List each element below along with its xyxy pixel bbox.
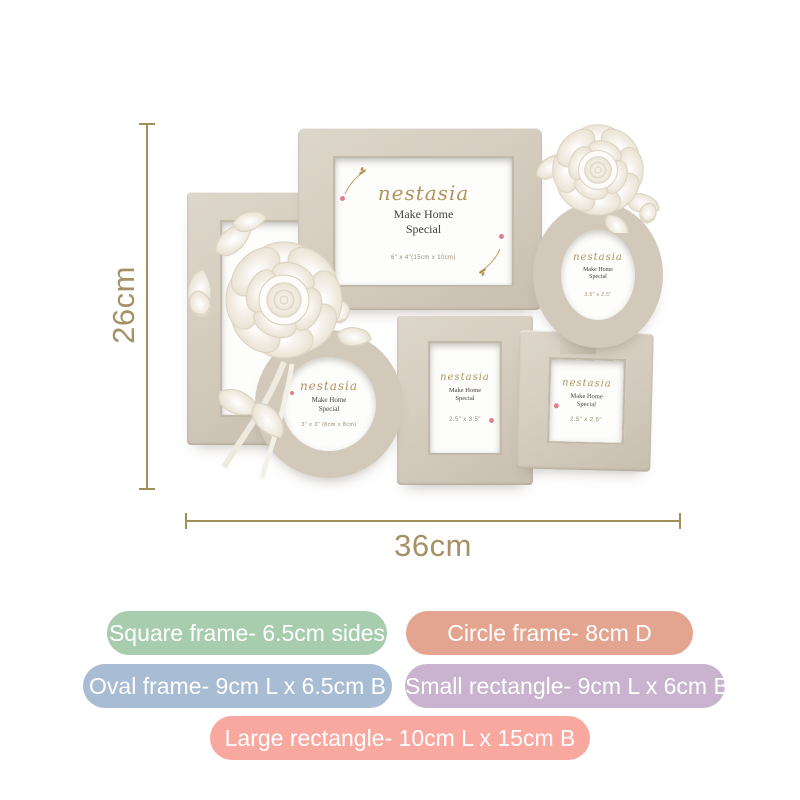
brand-logo-text: nestasia [573, 253, 623, 263]
tagline-line2: Special [394, 222, 454, 237]
square-frame-opening: nestasia Make Home Special 2.5" x 2.5" [547, 357, 626, 445]
product-dimension-infographic: 26cm 36cm nestasia Ma [0, 0, 800, 800]
pink-dot [554, 403, 559, 408]
badge-circle-frame: Circle frame- 8cm D [406, 611, 693, 655]
tagline-line1: Make Home [583, 267, 613, 275]
pink-dot [499, 234, 504, 239]
rose-ornament-left [172, 212, 397, 487]
wheat-sprig-icon [476, 247, 502, 277]
brand-logo-text: nestasia [562, 378, 612, 389]
brand-tagline: Make Home Special [394, 207, 454, 237]
rose-ornament-right [520, 118, 680, 233]
brand-tagline: Make Home Special [570, 392, 603, 409]
badge-square-frame: Square frame- 6.5cm sides [107, 611, 387, 655]
wheat-sprig-icon [343, 166, 369, 196]
tagline-line1: Make Home [449, 387, 481, 395]
tagline-line2: Special [583, 274, 613, 282]
tagline-line1: Make Home [394, 207, 454, 222]
small-rectangle-opening: nestasia Make Home Special 2.5" x 3.5" [428, 341, 502, 455]
brand-tagline: Make Home Special [583, 267, 613, 282]
badge-large-rectangle: Large rectangle- 10cm L x 15cm B [210, 716, 590, 760]
badge-oval-frame: Oval frame- 9cm L x 6.5cm B [83, 664, 392, 708]
brand-tagline: Make Home Special [449, 387, 481, 403]
oval-frame-opening: nestasia Make Home Special 3.5" x 2.5" [561, 230, 635, 320]
insert-size-caption: 6" x 4"(15cm x 10cm) [391, 255, 456, 261]
insert-size-caption: 2.5" x 2.5" [570, 417, 602, 424]
tagline-line2: Special [570, 401, 603, 410]
small-rectangle-frame: nestasia Make Home Special 2.5" x 3.5" [397, 315, 533, 485]
insert-size-caption: 2.5" x 3.5" [449, 417, 481, 423]
insert-size-caption: 3.5" x 2.5" [584, 292, 611, 298]
pink-dot [340, 196, 345, 201]
width-dimension-line [185, 520, 681, 522]
tagline-line2: Special [449, 395, 481, 403]
pink-dot [489, 418, 494, 423]
brand-logo-text: nestasia [440, 373, 490, 383]
width-dimension-label: 36cm [394, 528, 472, 564]
height-dimension-label: 26cm [106, 266, 142, 344]
height-dimension-line [146, 123, 148, 490]
badge-small-rectangle: Small rectangle- 9cm L x 6cm B [405, 664, 725, 708]
brand-logo-text: nestasia [378, 183, 470, 203]
